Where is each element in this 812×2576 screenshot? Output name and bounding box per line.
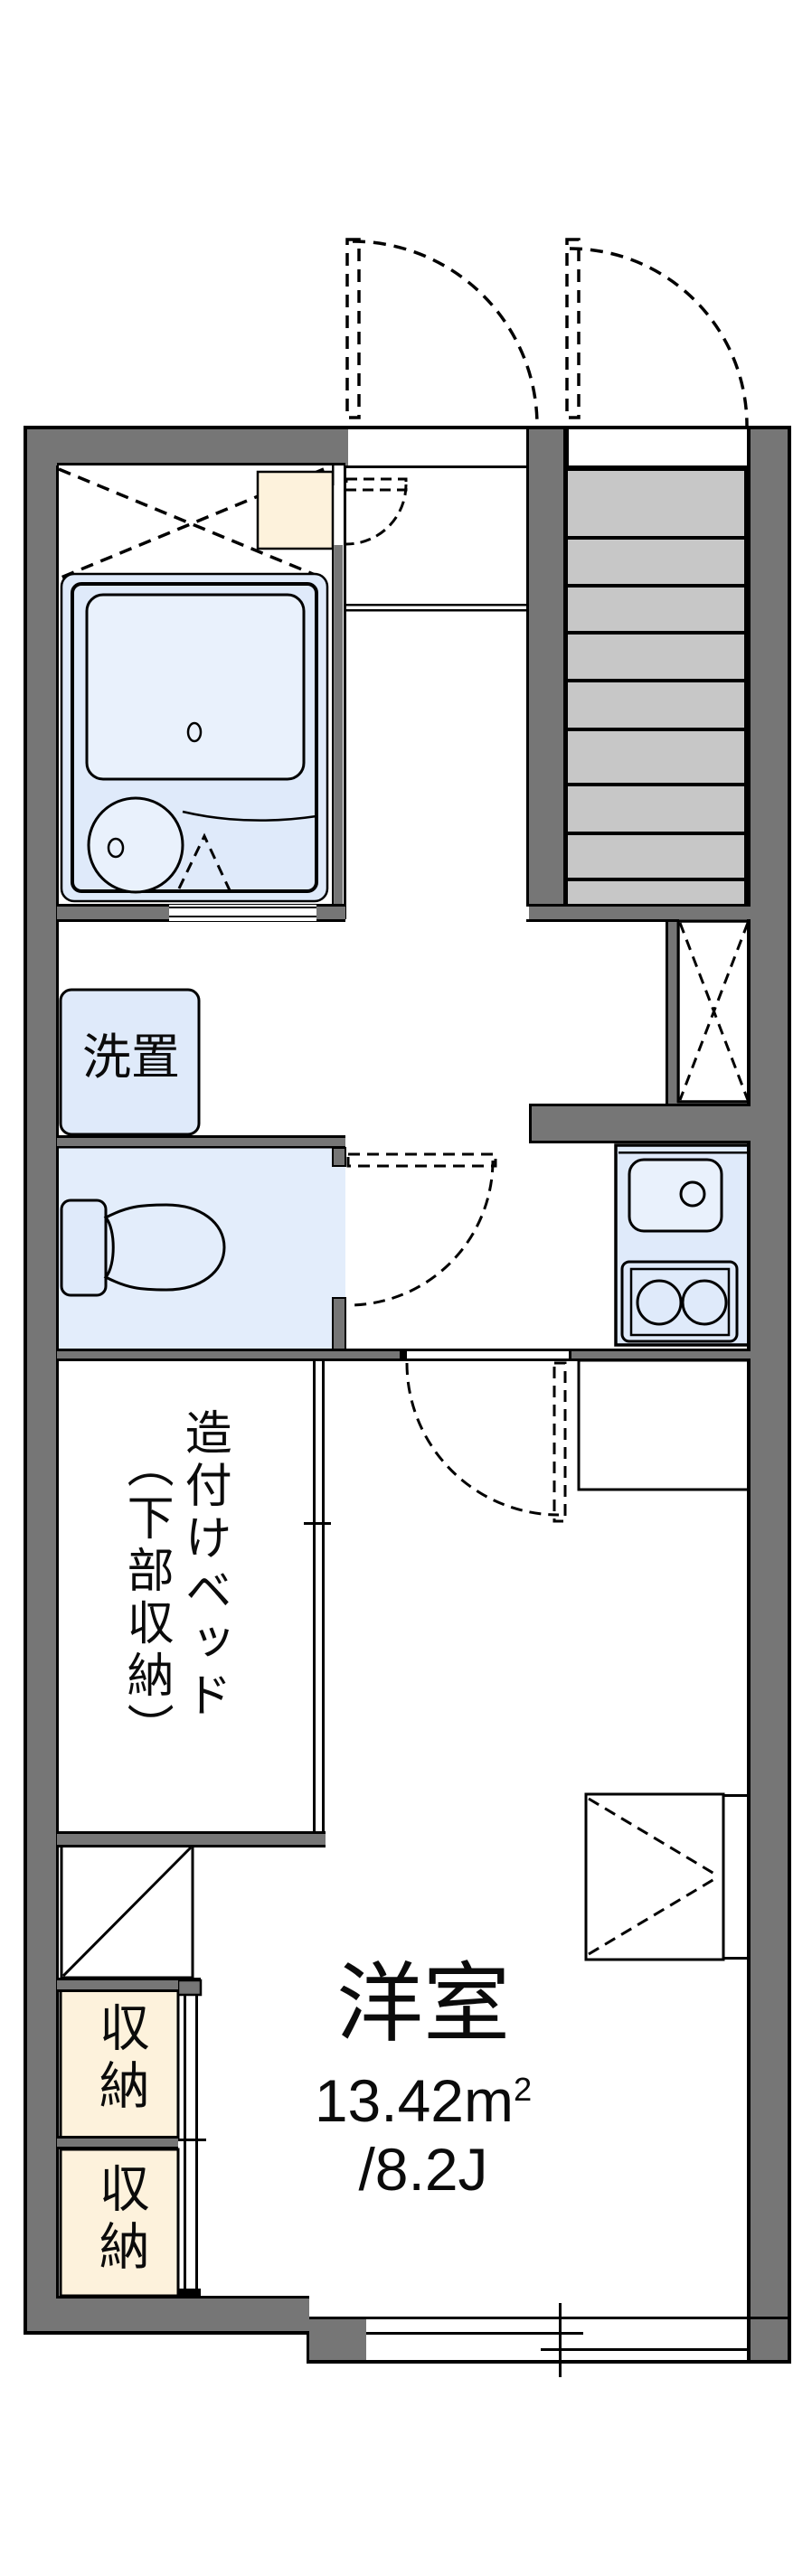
genkan-step-line-1: [346, 604, 526, 606]
wall-left: [27, 429, 56, 2331]
bay-window-unit: [586, 1794, 747, 1960]
floor-plan: 洗置 造付けベッド （下部収納） 収納 収納 洋室 13.42m2 /8.2J: [0, 0, 812, 2576]
closet-wall-stub: [178, 1980, 201, 1995]
understair-line-bottom: [526, 919, 679, 922]
bay-box: [586, 1794, 723, 1960]
wall-top: [27, 429, 348, 465]
bottom-wall-left: [27, 2299, 309, 2331]
bath-right-wall-stub: [332, 465, 335, 485]
room-name-label: 洋室: [333, 1960, 514, 2050]
bathroom-door-leaf: [346, 479, 406, 490]
kitchen: [616, 1145, 751, 1345]
room-area-jo-label: /8.2J: [310, 2139, 536, 2201]
closet-band-1: [57, 1980, 178, 1989]
room-door-leaf: [554, 1363, 565, 1521]
toilet-wall-line-bottom: [57, 1146, 345, 1149]
hall-closet-wall: [668, 922, 676, 1104]
toilet-tank: [61, 1200, 106, 1295]
bed-bottom-line-2: [57, 1845, 326, 1847]
storage-label-upper: 収納: [94, 2001, 146, 2117]
closet-band-line-2: [57, 1989, 178, 1992]
wash-basin: [89, 798, 183, 892]
bottom-wall-line-top: [57, 2296, 309, 2299]
room-doorway: [407, 1351, 567, 1359]
stair-left-wall-edge-l: [526, 428, 529, 907]
kitchen-wall-cap: [529, 1104, 532, 1143]
bottom-wall-right-corner: [751, 2319, 788, 2360]
wall-left-outer-line: [24, 426, 27, 2335]
bathtub-drain: [188, 723, 201, 741]
hall-closet: [678, 921, 750, 1102]
hall-closet-wall-edge: [666, 921, 668, 1104]
understair-line-top: [526, 904, 751, 907]
kitchen-faucet: [681, 1182, 704, 1206]
bottom-wall-step: [309, 2319, 366, 2360]
closet-band-line-1: [57, 1978, 201, 1980]
toilet-right-wall-top: [333, 1148, 345, 1166]
kitchen-wall: [532, 1106, 751, 1141]
kitchen-side-wall: [571, 1351, 751, 1359]
entrance-doors: [347, 240, 747, 426]
toilet-wall-line-top: [57, 1135, 345, 1138]
kitchen-side-line-bottom: [571, 1359, 751, 1361]
bath-window-line-2: [169, 916, 316, 917]
bottom-window-sash-left: [366, 2332, 583, 2335]
storage-label-lower: 収納: [94, 2162, 146, 2278]
staircase: [566, 469, 746, 906]
bed-label-note: （下部収納）: [121, 1441, 170, 1755]
bed-bottom-line-1: [57, 1831, 326, 1834]
genkan-step-line-2: [346, 609, 526, 612]
wall-right-inner-line: [747, 428, 751, 2364]
kitchen-counter-edge: [618, 1152, 748, 1154]
bathtub: [87, 595, 304, 779]
closet-track-tick: [174, 2139, 206, 2141]
kitchen-side-cap: [569, 1349, 571, 1361]
closet-divider: [57, 2139, 178, 2147]
wall-bottomleft-outer-line: [24, 2331, 309, 2335]
closet-track-line-2: [195, 1994, 198, 2298]
refrigerator-space: [579, 1360, 751, 1490]
closet-divider-line-1: [57, 2136, 178, 2139]
toilet-door-arc: [348, 1161, 493, 1305]
wall-top-outer-line: [24, 426, 791, 429]
bottom-window-sash-right: [541, 2348, 750, 2351]
room-area-m2: 13.42m: [315, 2067, 514, 2134]
toilet-bowl: [106, 1205, 224, 1290]
kitchen-wall-line-top: [529, 1104, 751, 1106]
wall-top-stub-edge-r: [566, 428, 569, 465]
bed-top-line: [57, 1349, 570, 1351]
entrance-door-leaf-right: [567, 240, 579, 418]
bed-top-wall: [57, 1351, 400, 1359]
bed-front-tick: [304, 1522, 331, 1525]
entrance-door-arc-right: [570, 249, 747, 426]
wall-bottom-outer-line: [309, 2360, 791, 2364]
bed-label-main: 造付けベッド: [179, 1408, 228, 1723]
bed-front-line-outer: [313, 1361, 316, 1833]
entrance-door-arc-left: [353, 241, 537, 426]
wall-right: [751, 429, 788, 2360]
bottom-window-center-tick: [559, 2303, 562, 2377]
bath-top-inner-line: [57, 463, 345, 465]
wall-right-outer-line: [788, 426, 791, 2364]
washer-label: 洗置: [70, 1032, 193, 1083]
doorway-cap-left: [400, 1351, 407, 1361]
hall-left-edge-line: [344, 465, 346, 919]
stair-left-wall-edge-r: [563, 429, 566, 907]
bath-right-wall-edge: [332, 545, 335, 904]
toilet-top-wall: [57, 1138, 345, 1146]
toilet-door-leaf: [348, 1154, 496, 1166]
wall-left-inner-line: [56, 465, 59, 2333]
bathroom: [59, 469, 333, 901]
stair-left-wall: [529, 429, 563, 907]
kitchen-sink: [629, 1160, 722, 1231]
stair-well: [566, 469, 746, 906]
bath-right-wall: [335, 545, 343, 904]
room-area-sup: 2: [514, 2071, 532, 2108]
bed-front-line-inner: [322, 1361, 325, 1833]
closet-divider-line-2: [57, 2147, 178, 2149]
entrance-door-leaf-left: [347, 240, 359, 418]
toilet-right-wall-bottom: [333, 1298, 345, 1350]
bay-bottom-line: [723, 1957, 747, 1960]
bottom-window: [366, 2319, 747, 2360]
bathroom-door-arc: [346, 484, 406, 544]
toilet-room: [57, 1148, 345, 1350]
bed-bottom-wall: [57, 1834, 326, 1845]
bath-window-line-1: [169, 907, 316, 908]
understair-wall: [529, 907, 751, 919]
closet-track-line-1: [184, 1994, 186, 2298]
kitchen-wall-line-bottom: [529, 1141, 751, 1143]
built-in-bed: [304, 1361, 331, 1833]
kitchen-side-line-top: [571, 1349, 751, 1351]
bed-top-line-2: [57, 1359, 570, 1361]
bay-top-line: [723, 1794, 747, 1797]
room-area-label: 13.42m2: [310, 2070, 536, 2132]
bottom-window-line-top: [309, 2317, 791, 2319]
bath-water-heater-box: [258, 472, 333, 549]
room-door-arc: [407, 1363, 559, 1515]
